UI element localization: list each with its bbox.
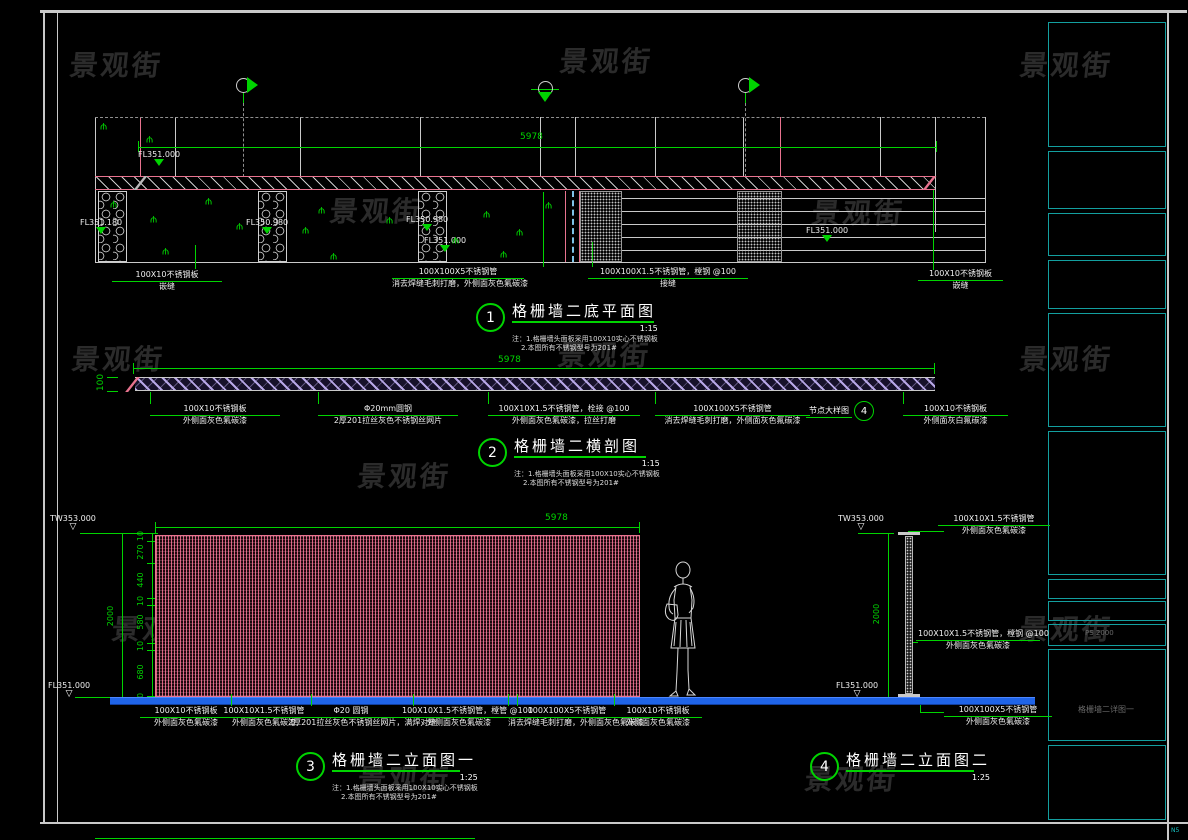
- view-number-bubble: 1: [476, 303, 505, 332]
- gravel-column-hatch: [580, 191, 622, 262]
- grid-line: [40, 822, 1188, 824]
- grass-symbol: Ψ: [205, 195, 212, 204]
- level-marker-top: TW353.000▽: [838, 514, 884, 532]
- watermark: 景观街: [70, 338, 167, 378]
- plan-callout: 100X10不锈钢板嵌缝: [112, 270, 222, 292]
- grid-line: [935, 117, 936, 232]
- section-callout: 100X10不锈钢板外侧面灰色氟碳漆: [150, 404, 280, 426]
- grid-line: [1167, 10, 1169, 840]
- dimension-line: [95, 838, 475, 839]
- dimension-line: [152, 533, 153, 704]
- dimension-line: [888, 533, 889, 698]
- section-callout: 100X10X1.5不锈钢管，栓接 @100外侧面灰色氟碳漆，拉丝打磨: [488, 404, 640, 426]
- elevation-callout: Φ20 圆钢2厚201拉丝灰色不锈钢丝网片，满焊对缝: [288, 706, 414, 728]
- view-title-text: 格栅墙二立面图二: [846, 752, 990, 768]
- view-title-elevation2: 4 格栅墙二立面图二 1:25: [810, 752, 990, 782]
- grass-symbol: Ψ: [100, 120, 107, 129]
- titleblock-drawing-name: 格栅墙二详图一: [1078, 704, 1134, 715]
- dimension-line: [543, 192, 544, 267]
- dim-total: 2000: [107, 605, 115, 627]
- dimension-line: [639, 522, 640, 533]
- elevation-callout: 100X10X1.5不锈钢管，樘管 @100外侧面灰色氟碳漆: [400, 706, 518, 728]
- dimension-line: [133, 368, 935, 369]
- title-underline: [332, 770, 460, 772]
- level-marker: FL350.980: [406, 215, 448, 231]
- dimension-line: [883, 533, 894, 534]
- grass-symbol: Ψ: [483, 208, 490, 217]
- level-marker: FL351.000: [138, 150, 180, 166]
- view-scale: 1:25: [846, 773, 990, 782]
- view-scale: 1:15: [512, 324, 658, 333]
- view-scale: 1:25: [332, 773, 478, 782]
- section-length-dim: 5978: [498, 356, 521, 365]
- view-number-bubble: 4: [810, 752, 839, 781]
- grass-symbol: Ψ: [318, 204, 325, 213]
- dimension-line: [745, 93, 746, 103]
- grid-line: [622, 250, 985, 251]
- grass-symbol: Ψ: [236, 220, 243, 229]
- title-underline: [846, 770, 974, 772]
- marker-arrow-icon: [247, 77, 258, 93]
- grass-symbol: Ψ: [110, 198, 117, 207]
- dimension-line: [195, 245, 196, 269]
- view-title-elevation1: 3 格栅墙二立面图一 1:25 注：1.格栅墙头面板采用100X10实心不锈钢板…: [296, 752, 478, 802]
- section-height-dim: 100: [97, 374, 106, 391]
- grass-symbol: Ψ: [162, 245, 169, 254]
- grass-symbol: Ψ: [545, 199, 552, 208]
- elevation-callout: 100X10不锈钢板外侧面灰色氟碳漆: [614, 706, 702, 728]
- dim-total: 2000: [873, 603, 881, 625]
- section-callout: 100X100X5不锈钢管消去焊缝毛刺打磨，外侧面灰色氟碳漆: [655, 404, 810, 426]
- section-bar-hatch: [135, 377, 935, 391]
- view-number-bubble: 3: [296, 752, 325, 781]
- title-underline: [512, 321, 654, 323]
- level-marker: FL351.000: [424, 236, 466, 252]
- dimension-line: [243, 93, 244, 103]
- titleblock-panel: [1048, 601, 1166, 621]
- dimension-line: [936, 141, 937, 152]
- level-marker-top: TW353.000▽: [50, 514, 96, 532]
- dim-segment: 10: [137, 590, 145, 612]
- dimension-line: [107, 391, 118, 392]
- ground-line: [110, 697, 1035, 705]
- grass-symbol: Ψ: [150, 213, 157, 222]
- gravel-column-hatch: [737, 191, 782, 262]
- steel-post: [905, 536, 913, 694]
- grid-line: [40, 10, 1187, 13]
- section-cut-marker: [236, 78, 251, 93]
- dim-segment: 680: [137, 661, 145, 683]
- plan-callout: 100X100X5不锈钢管消去焊缝毛刺打磨，外侧面灰色氟碳漆: [392, 267, 524, 289]
- grid-line: [622, 198, 985, 199]
- titleblock-panel: [1048, 313, 1166, 427]
- dimension-line: [933, 190, 934, 270]
- view-notes: 注：1.格栅墙头面板采用100X10实心不锈钢板2.本图所有不锈钢型号为201#: [332, 784, 478, 802]
- view-number-bubble: 2: [478, 438, 507, 467]
- dim-segment: 440: [137, 569, 145, 591]
- grid-line: [898, 532, 920, 535]
- elevation-callout: 100X100X5不锈钢管消去焊缝毛刺打磨，外侧面灰色氟碳漆: [508, 706, 626, 728]
- section-callout: 100X10不锈钢板外侧面灰白氟碳漆: [903, 404, 1008, 426]
- level-marker: FL350.980: [246, 218, 288, 234]
- watermark: 景观街: [68, 44, 165, 84]
- watermark: 景观街: [356, 455, 453, 495]
- grid-line: [622, 211, 985, 212]
- view-scale: 1:15: [514, 459, 660, 468]
- dashed-axis-line: [745, 103, 746, 177]
- grass-symbol: Ψ: [302, 224, 309, 233]
- watermark: 景观街: [558, 40, 655, 80]
- dimension-line: [920, 712, 944, 713]
- grass-symbol: Ψ: [500, 248, 507, 257]
- plan-callout: 100X100X1.5不锈钢管，樘钢 @100接缝: [588, 267, 748, 289]
- elevation-callout: 100X10X1.5不锈钢管外侧面灰色氟碳漆: [938, 514, 1050, 536]
- marker-arrow-icon: [538, 92, 552, 102]
- titleblock-code: PS 2000: [1085, 629, 1114, 637]
- grid-line: [95, 117, 96, 263]
- grid-line: [57, 12, 58, 822]
- cad-drawing-sheet: 景观街 景观街 景观街 景观街 景观街 景观街 景观街 景观街 景观街 景观街 …: [0, 0, 1188, 840]
- dimension-line: [107, 377, 118, 378]
- lattice-wall-hatch: [155, 535, 640, 697]
- dimension-line: [122, 533, 123, 704]
- view-title-text: 格栅墙二底平面图: [512, 303, 658, 319]
- titleblock-panel: [1048, 579, 1166, 599]
- grid-line: [622, 237, 985, 238]
- grid-line: [985, 117, 986, 263]
- dashed-axis-line: [243, 103, 244, 177]
- dimension-line: [934, 363, 935, 374]
- grid-line: [95, 262, 985, 263]
- plan-callout: 100X10不锈钢板嵌缝: [918, 269, 1003, 291]
- sheet-corner-code: N5: [1171, 827, 1179, 834]
- waterline: [572, 191, 574, 262]
- section-cut-marker: [738, 78, 753, 93]
- dimension-line: [155, 527, 640, 528]
- detail-number: 4: [854, 401, 874, 421]
- titleblock-panel: [1048, 213, 1166, 256]
- dim-segment: 270: [137, 541, 145, 563]
- titleblock-panel: [1048, 260, 1166, 309]
- view-title-text: 格栅墙二横剖图: [514, 438, 660, 454]
- person-figure: [660, 560, 706, 700]
- dim-segment: 580: [137, 611, 145, 633]
- section-callout: Φ20mm圆钢2厚201拉丝灰色不锈钢丝网片: [318, 404, 458, 426]
- grass-symbol: Ψ: [330, 250, 337, 259]
- grass-symbol: Ψ: [452, 234, 459, 243]
- level-marker-bottom: FL351.000▽: [836, 681, 878, 699]
- elevation-callout: 100X10X1.5不锈钢管，樘钢 @100外侧面灰色氟碳漆: [916, 629, 1040, 651]
- grid-line: [43, 10, 45, 824]
- dimension-line: [138, 147, 937, 148]
- view-notes: 注：1.格栅墙头面板采用100X10实心不锈钢板2.本图所有不锈钢型号为201#: [514, 470, 660, 488]
- dashed-grid-line: [95, 117, 985, 118]
- view-notes: 注：1.格栅墙头面板采用100X10实心不锈钢板2.本图所有不锈钢型号为201#: [512, 335, 658, 353]
- plan-hatch-band: [95, 176, 935, 190]
- section-cut-marker: [538, 81, 553, 96]
- detail-reference-bubble: 节点大样图 4: [806, 401, 874, 421]
- view-title-section: 2 格栅墙二横剖图 1:15 注：1.格栅墙头面板采用100X10实心不锈钢板2…: [478, 438, 660, 488]
- dimension-line: [147, 533, 158, 534]
- elevation-length-dim: 5978: [545, 514, 568, 523]
- view-title-plan: 1 格栅墙二底平面图 1:15 注：1.格栅墙头面板采用100X10实心不锈钢板…: [476, 303, 658, 353]
- titleblock-panel: [1048, 431, 1166, 575]
- title-underline: [514, 456, 646, 458]
- grass-symbol: Ψ: [516, 226, 523, 235]
- dim-segment: 10: [137, 635, 145, 657]
- marker-arrow-icon: [749, 77, 760, 93]
- titleblock-panel: [1048, 745, 1166, 820]
- level-marker: FL351.000: [806, 226, 848, 242]
- dimension-line: [117, 533, 128, 534]
- titleblock-panel: [1048, 649, 1166, 741]
- grid-line: [622, 224, 985, 225]
- titleblock-panel: [1048, 151, 1166, 209]
- wall-strip: [565, 191, 580, 262]
- grass-symbol: Ψ: [386, 214, 393, 223]
- dimension-line: [155, 522, 156, 533]
- grass-symbol: Ψ: [146, 133, 153, 142]
- level-marker-bottom: FL351.000▽: [48, 681, 90, 699]
- view-title-text: 格栅墙二立面图一: [332, 752, 478, 768]
- elevation-callout: 100X100X5不锈钢管外侧面灰色氟碳漆: [944, 705, 1052, 727]
- plan-length-dim: 5978: [520, 133, 543, 142]
- level-marker: FL351.180: [80, 218, 122, 234]
- dimension-line: [133, 363, 134, 374]
- titleblock-panel: [1048, 22, 1166, 147]
